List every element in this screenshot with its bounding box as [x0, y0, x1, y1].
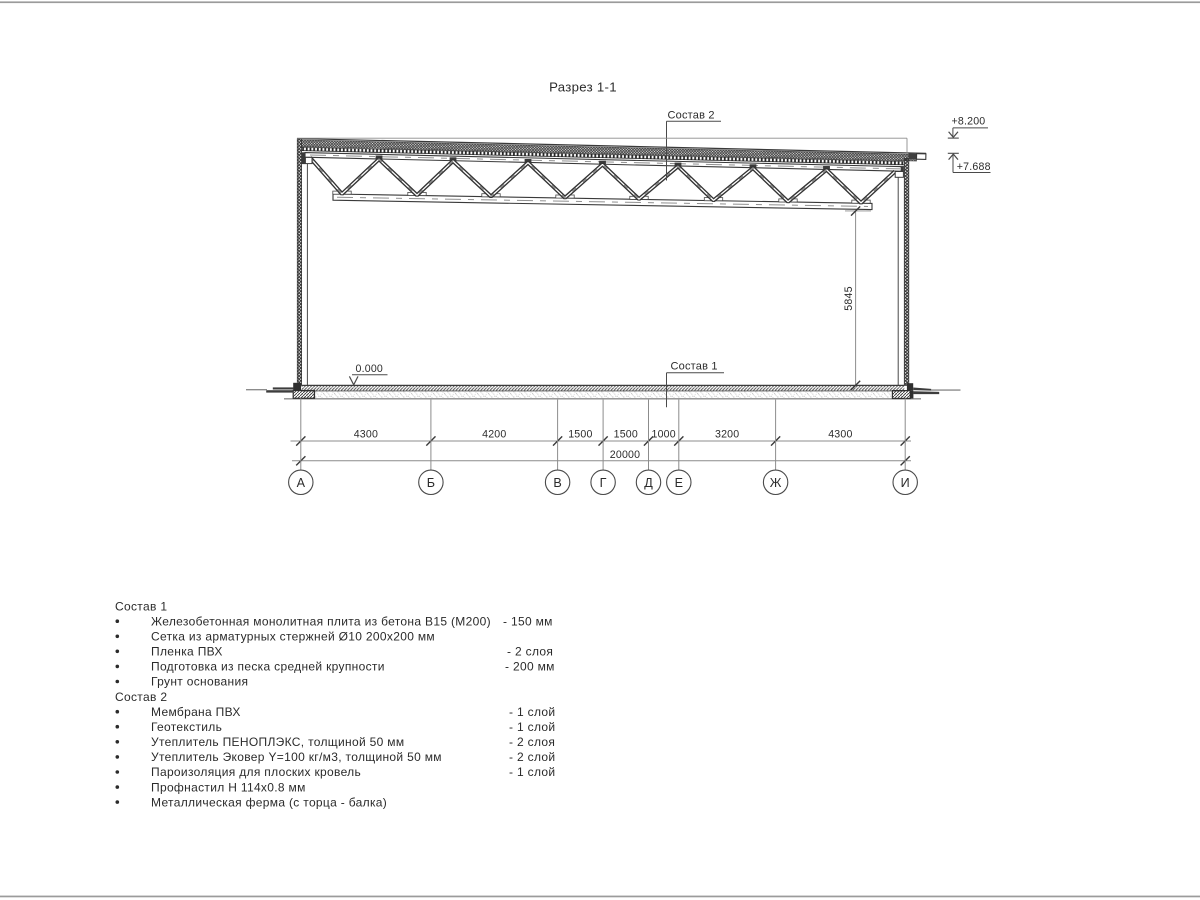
svg-text:Утеплитель Эковер Y=100 кг/м3,: Утеплитель Эковер Y=100 кг/м3, толщиной …	[151, 750, 442, 764]
svg-text:В: В	[553, 476, 561, 490]
svg-text:- 150 мм: - 150 мм	[503, 614, 553, 628]
svg-text:3200: 3200	[715, 428, 739, 440]
svg-text:Д: Д	[644, 476, 653, 490]
svg-text:- 1 слой: - 1 слой	[509, 705, 555, 719]
svg-text:0.000: 0.000	[356, 363, 384, 375]
svg-text:Ж: Ж	[770, 476, 782, 490]
svg-text:+7.688: +7.688	[957, 161, 991, 173]
svg-text:Мембрана ПВХ: Мембрана ПВХ	[151, 705, 241, 719]
svg-text:И: И	[901, 476, 910, 490]
svg-text:- 1 слой: - 1 слой	[509, 720, 555, 734]
svg-text:Пароизоляция для плоских крове: Пароизоляция для плоских кровель	[151, 765, 361, 779]
svg-text:Состав 1: Состав 1	[671, 361, 718, 373]
svg-text:1000: 1000	[652, 428, 676, 440]
svg-text:5845: 5845	[843, 286, 855, 310]
svg-text:1500: 1500	[568, 428, 592, 440]
svg-text:- 2 слоя: - 2 слоя	[509, 735, 555, 749]
svg-text:Пленка ПВХ: Пленка ПВХ	[151, 645, 223, 659]
svg-text:1500: 1500	[614, 428, 638, 440]
svg-text:- 1 слой: - 1 слой	[509, 765, 555, 779]
svg-text:Железобетонная монолитная плит: Железобетонная монолитная плита из бетон…	[151, 614, 491, 628]
svg-text:- 200 мм: - 200 мм	[505, 660, 555, 674]
svg-text:- 2 слоя: - 2 слоя	[507, 645, 553, 659]
svg-text:4300: 4300	[828, 428, 852, 440]
svg-text:Е: Е	[675, 476, 683, 490]
svg-text:А: А	[297, 476, 306, 490]
svg-text:+8.200: +8.200	[952, 115, 986, 127]
svg-text:4200: 4200	[482, 428, 506, 440]
svg-text:- 2 слой: - 2 слой	[509, 750, 555, 764]
svg-text:Разрез 1-1: Разрез 1-1	[549, 80, 617, 95]
svg-text:20000: 20000	[610, 449, 640, 461]
svg-text:Г: Г	[600, 476, 607, 490]
svg-text:Грунт основания: Грунт основания	[151, 675, 248, 689]
svg-text:Подготовка из песка средней кр: Подготовка из песка средней крупности	[151, 660, 385, 674]
svg-text:Сетка из арматурных стержней Ø: Сетка из арматурных стержней Ø10 200x200…	[151, 630, 435, 644]
svg-text:Профнастил Н 114x0.8 мм: Профнастил Н 114x0.8 мм	[151, 780, 306, 794]
svg-text:4300: 4300	[354, 428, 378, 440]
svg-text:Геотекстиль: Геотекстиль	[151, 720, 222, 734]
svg-text:Состав 1: Состав 1	[115, 599, 167, 613]
svg-text:Б: Б	[427, 476, 435, 490]
svg-text:Утеплитель ПЕНОПЛЭКС, толщиной: Утеплитель ПЕНОПЛЭКС, толщиной 50 мм	[151, 735, 404, 749]
svg-text:Металлическая ферма (с торца -: Металлическая ферма (с торца - балка)	[151, 795, 387, 809]
svg-text:Состав 2: Состав 2	[668, 110, 715, 122]
svg-text:Состав 2: Состав 2	[115, 690, 167, 704]
